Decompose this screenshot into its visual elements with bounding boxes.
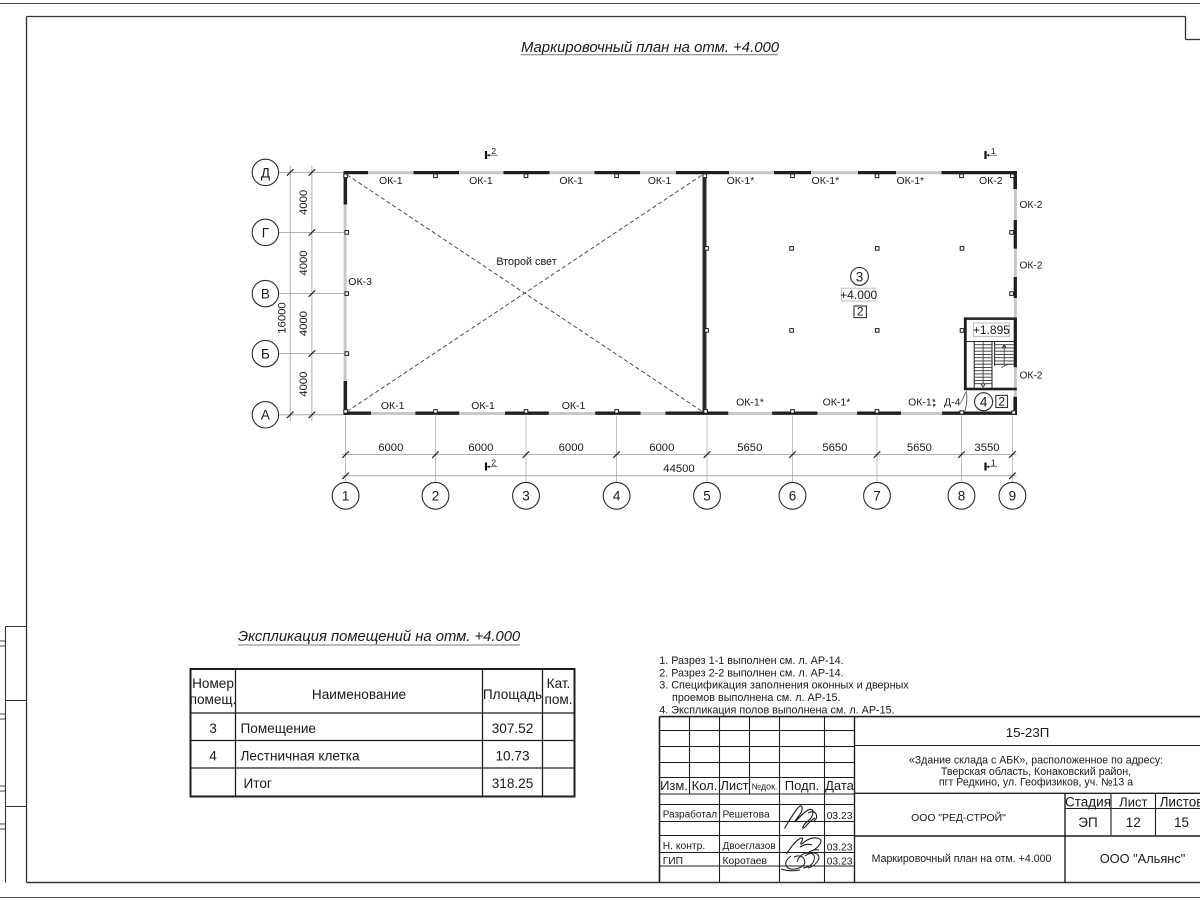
svg-text:2: 2 [857, 305, 864, 319]
svg-text:ОК-1: ОК-1 [381, 400, 405, 412]
svg-text:44500: 44500 [663, 463, 694, 475]
svg-text:03.23: 03.23 [827, 843, 853, 854]
svg-text:4000: 4000 [298, 250, 310, 275]
svg-text:ОК-1*: ОК-1* [727, 175, 755, 187]
svg-text:Номер: Номер [192, 676, 234, 691]
svg-text:Лист: Лист [720, 778, 748, 793]
svg-text:ОК-1: ОК-1 [379, 175, 403, 187]
svg-text:1: 1 [991, 458, 996, 468]
svg-text:15-23П: 15-23П [1006, 725, 1050, 740]
svg-text:А: А [261, 408, 270, 423]
svg-text:ОК-1*: ОК-1* [812, 175, 840, 187]
svg-text:пгт Редкино, ул. Геофизиков, у: пгт Редкино, ул. Геофизиков, уч. №13 а [939, 777, 1133, 789]
svg-text:7: 7 [873, 489, 881, 504]
svg-text:1: 1 [991, 146, 996, 156]
svg-text:6000: 6000 [378, 442, 403, 454]
svg-text:4000: 4000 [298, 311, 310, 336]
svg-text:307.52: 307.52 [492, 721, 534, 736]
svg-text:Маркировочный план на отм. +4.: Маркировочный план на отм. +4.000 [872, 853, 1052, 865]
svg-text:5: 5 [703, 489, 711, 504]
svg-text:ОК-1*: ОК-1* [823, 396, 851, 408]
svg-text:3550: 3550 [974, 442, 999, 454]
svg-text:ОК-2: ОК-2 [1020, 371, 1043, 382]
svg-text:6000: 6000 [649, 442, 674, 454]
svg-text:Лестничная клетка: Лестничная клетка [241, 748, 361, 763]
svg-text:ОК-1: ОК-1 [559, 175, 583, 187]
svg-text:Д: Д [261, 165, 270, 180]
svg-text:ОК-1: ОК-1 [471, 400, 495, 412]
svg-text:1: 1 [342, 489, 350, 504]
svg-text:Д-4: Д-4 [944, 397, 961, 409]
svg-text:6000: 6000 [559, 442, 584, 454]
svg-text:3. Спецификация заполнения око: 3. Спецификация заполнения оконных и две… [659, 680, 909, 692]
svg-text:№док.: №док. [752, 781, 778, 791]
svg-text:В: В [261, 287, 270, 302]
svg-text:ОК-1: ОК-1 [562, 400, 586, 412]
svg-text:Г: Г [262, 225, 270, 240]
svg-text:ОК-3: ОК-3 [348, 276, 372, 288]
svg-text:Листов: Листов [1160, 795, 1200, 810]
svg-text:Кат.: Кат. [547, 676, 571, 691]
svg-text:ОК-2: ОК-2 [1020, 261, 1043, 272]
svg-text:проемов выполнена см. л. АР-15: проемов выполнена см. л. АР-15. [672, 692, 841, 704]
svg-text:ОК-1: ОК-1 [469, 175, 493, 187]
svg-text:2: 2 [432, 489, 440, 504]
svg-text:ЭП: ЭП [1078, 815, 1097, 830]
svg-text:Коротаев: Коротаев [723, 856, 768, 867]
svg-text:Двоеглазов: Двоеглазов [723, 841, 776, 852]
svg-text:ООО "Альянс": ООО "Альянс" [1100, 851, 1186, 866]
svg-text:+4.000: +4.000 [840, 288, 877, 302]
svg-text:2: 2 [491, 146, 496, 156]
svg-text:Решетова: Решетова [723, 810, 770, 821]
svg-text:+1.895: +1.895 [973, 323, 1010, 337]
svg-text:Н. контр.: Н. контр. [663, 841, 706, 852]
svg-text:помещ.: помещ. [190, 692, 237, 707]
svg-text:2: 2 [998, 394, 1005, 408]
svg-text:03.23: 03.23 [827, 857, 853, 868]
svg-text:Второй свет: Второй свет [496, 256, 556, 268]
svg-text:5650: 5650 [907, 442, 932, 454]
svg-text:5650: 5650 [737, 442, 762, 454]
svg-text:Подп.: Подп. [785, 778, 820, 793]
svg-text:ОК-1*: ОК-1* [908, 396, 936, 408]
svg-text:4000: 4000 [298, 190, 310, 215]
svg-text:15: 15 [1174, 815, 1189, 830]
svg-text:4000: 4000 [298, 372, 310, 397]
svg-text:Наименование: Наименование [312, 687, 406, 702]
svg-text:Лист: Лист [1119, 795, 1147, 810]
svg-text:Маркировочный план на отм. +4.: Маркировочный план на отм. +4.000 [521, 40, 780, 56]
svg-text:318.25: 318.25 [492, 776, 534, 791]
svg-text:ОК-1*: ОК-1* [736, 396, 764, 408]
svg-text:4: 4 [980, 395, 988, 410]
svg-text:3: 3 [856, 269, 864, 284]
svg-text:ОК-1: ОК-1 [648, 175, 672, 187]
svg-text:5650: 5650 [822, 442, 847, 454]
svg-text:9: 9 [1009, 489, 1017, 504]
svg-text:3: 3 [209, 721, 217, 736]
svg-text:1. Разрез 1-1 выполнен см. л.: 1. Разрез 1-1 выполнен см. л. АР-14. [659, 655, 843, 667]
svg-text:ООО "РЕД-СТРОЙ": ООО "РЕД-СТРОЙ" [911, 811, 1006, 824]
svg-text:4. Экспликация полов выполнена: 4. Экспликация полов выполнена см. л. АР… [659, 705, 894, 717]
svg-text:2: 2 [491, 458, 496, 468]
svg-text:10.73: 10.73 [495, 748, 529, 763]
svg-text:8: 8 [958, 489, 966, 504]
svg-text:ГИП: ГИП [663, 856, 683, 867]
svg-text:2. Разрез 2-2 выполнен см. л.: 2. Разрез 2-2 выполнен см. л. АР-14. [659, 667, 843, 679]
svg-text:ОК-1*: ОК-1* [896, 175, 924, 187]
svg-text:03.23: 03.23 [827, 811, 853, 822]
svg-text:12: 12 [1126, 815, 1141, 830]
svg-text:ОК-2: ОК-2 [1020, 200, 1043, 211]
svg-text:пом.: пом. [544, 692, 572, 707]
svg-text:ОК-2: ОК-2 [979, 175, 1003, 187]
svg-text:Площадь: Площадь [483, 687, 542, 702]
svg-text:6: 6 [789, 489, 797, 504]
svg-text:Стадия: Стадия [1065, 795, 1111, 810]
svg-text:Изм.: Изм. [660, 778, 688, 793]
svg-text:Помещение: Помещение [241, 721, 317, 736]
svg-text:Б: Б [261, 347, 270, 362]
svg-text:4: 4 [613, 489, 621, 504]
svg-text:«Здание склада с АБК», располо: «Здание склада с АБК», расположенное по … [909, 755, 1163, 767]
svg-text:Дата: Дата [825, 778, 855, 793]
svg-text:16000: 16000 [276, 302, 288, 333]
svg-text:Итог: Итог [244, 776, 272, 791]
svg-text:Кол.: Кол. [692, 778, 718, 793]
svg-text:3: 3 [522, 489, 530, 504]
svg-text:Экспликация помещений на отм.: Экспликация помещений на отм. +4.000 [238, 629, 521, 645]
svg-text:6000: 6000 [468, 442, 493, 454]
svg-text:4: 4 [209, 748, 217, 763]
svg-text:Разработал: Разработал [663, 809, 718, 821]
